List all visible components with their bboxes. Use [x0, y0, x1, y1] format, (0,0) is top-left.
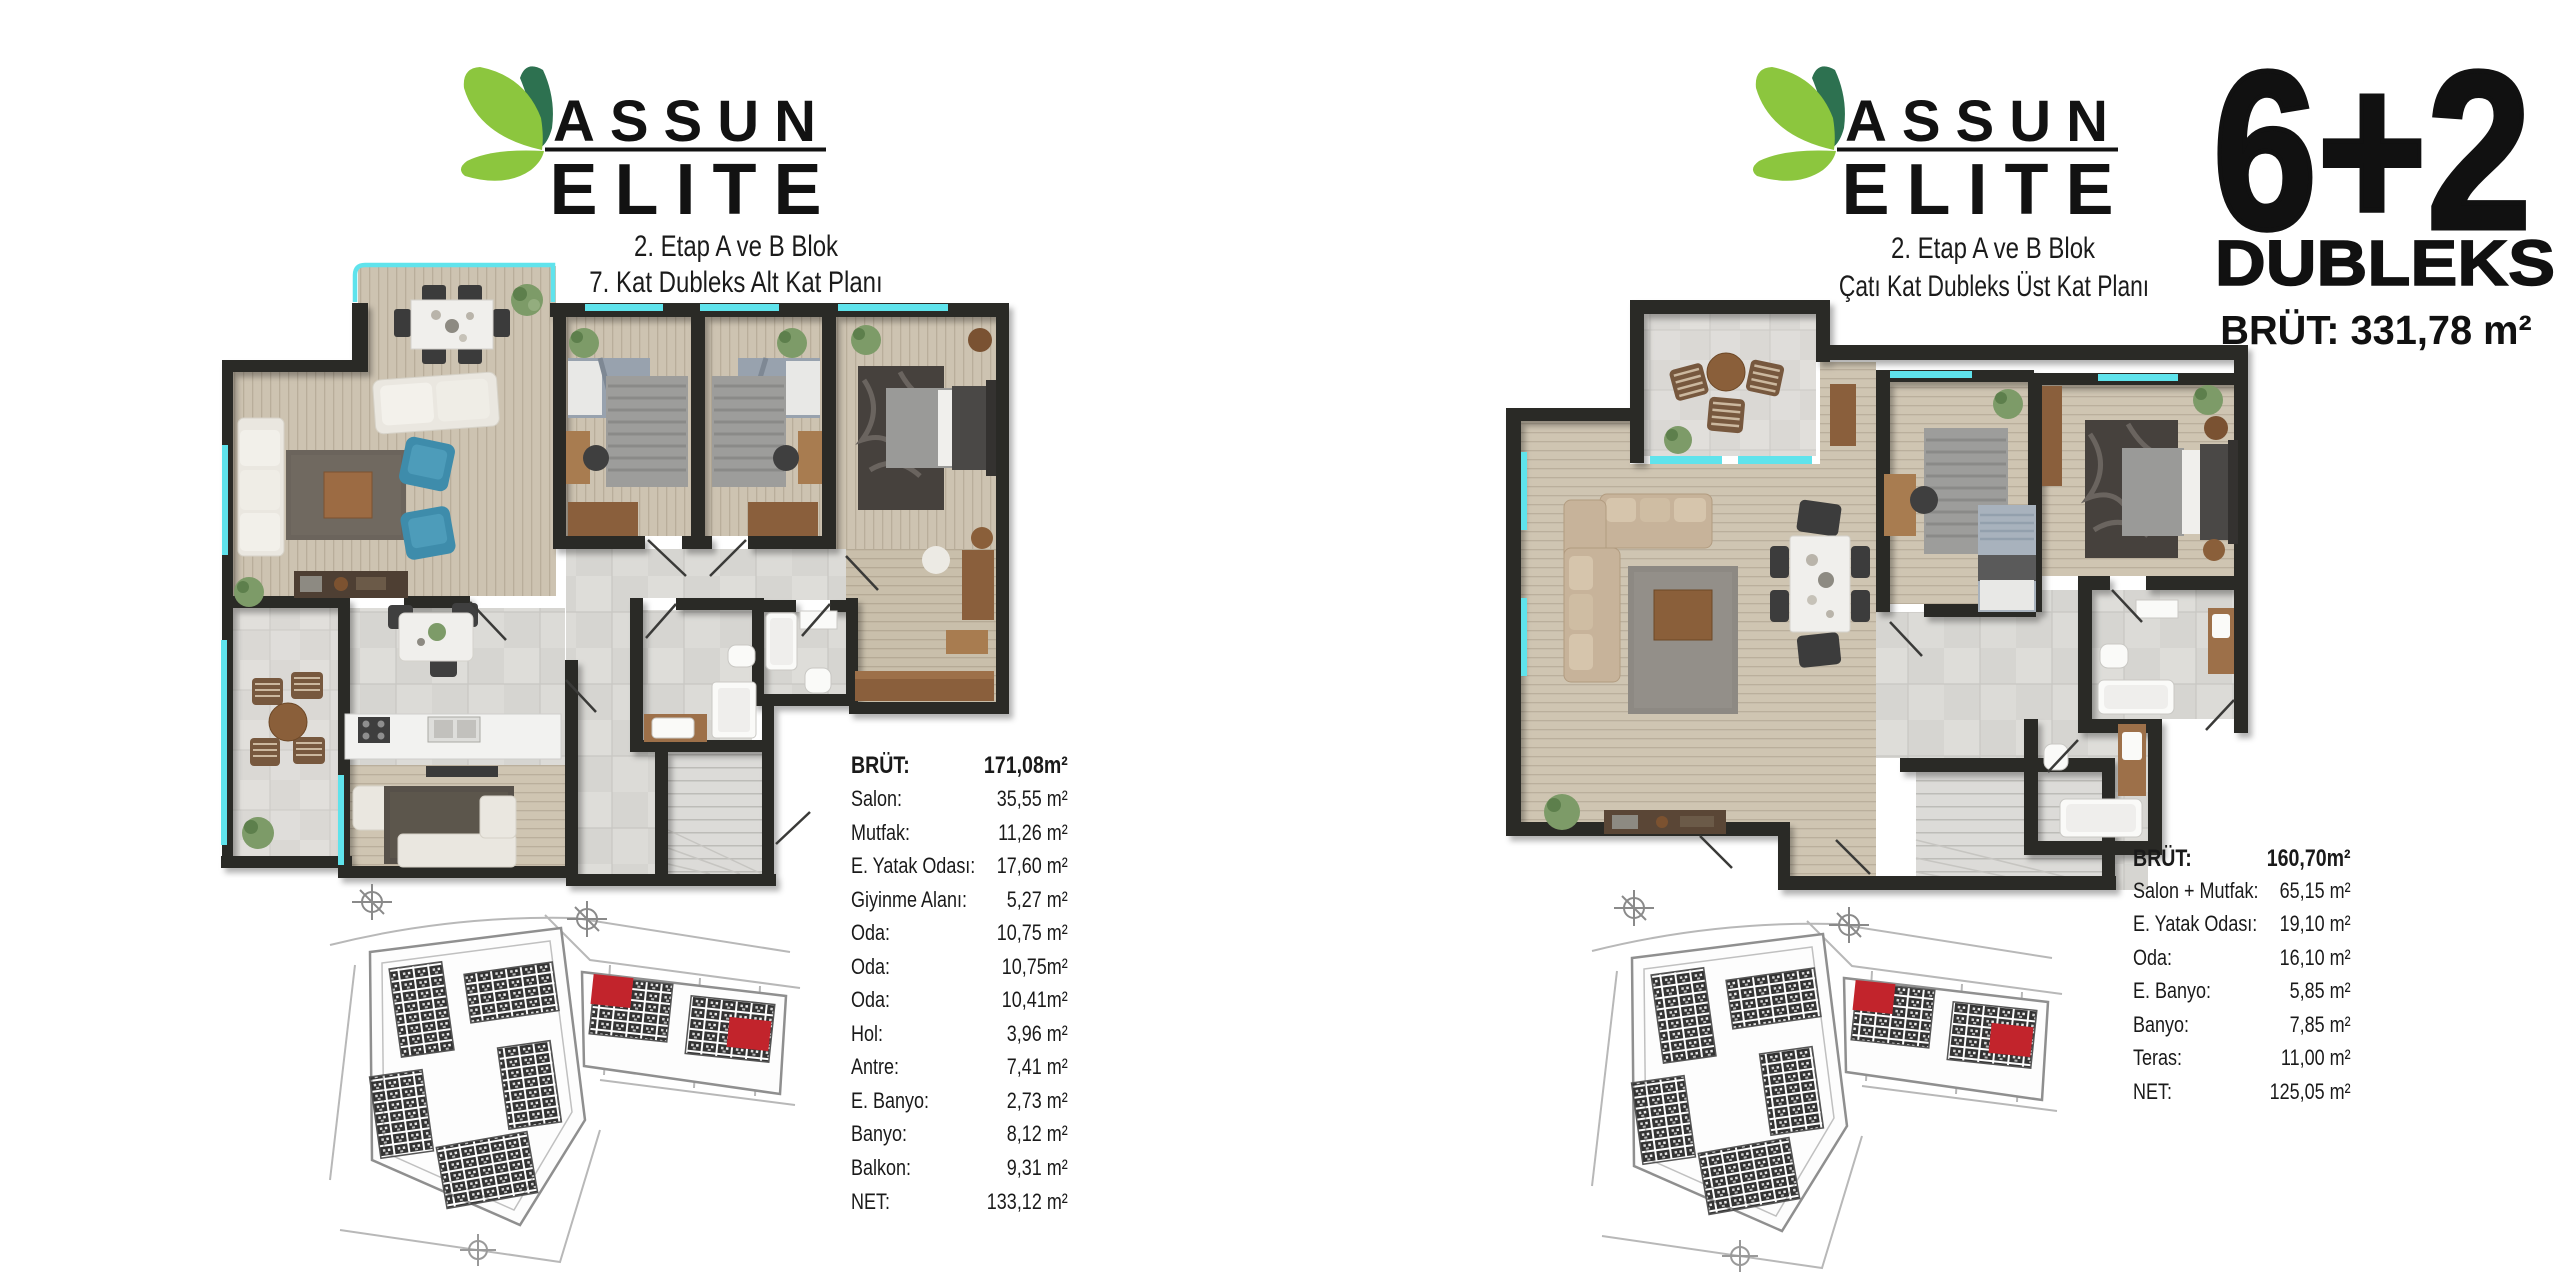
svg-text:Banyo:: Banyo: [2133, 1013, 2189, 1037]
svg-text:ELITE: ELITE [549, 150, 838, 230]
svg-text:10,75 m²: 10,75 m² [997, 921, 1068, 945]
svg-text:9,31 m²: 9,31 m² [1007, 1156, 1068, 1180]
svg-text:BRÜT:: BRÜT: [2133, 844, 2192, 872]
svg-text:ASSUN: ASSUN [1845, 89, 2123, 154]
svg-text:160,70m²: 160,70m² [2267, 844, 2351, 872]
svg-text:11,26 m²: 11,26 m² [998, 821, 1068, 845]
svg-text:Salon + Mutfak:: Salon + Mutfak: [2133, 879, 2258, 903]
svg-text:E. Banyo:: E. Banyo: [2133, 979, 2211, 1003]
svg-text:BRÜT: 331,78 m²: BRÜT: 331,78 m² [2220, 306, 2532, 353]
svg-text:E. Yatak Odası:: E. Yatak Odası: [2133, 912, 2257, 936]
svg-text:2. Etap A ve B Blok: 2. Etap A ve B Blok [1891, 230, 2095, 264]
svg-text:8,12 m²: 8,12 m² [1007, 1122, 1068, 1146]
svg-text:E. Banyo:: E. Banyo: [851, 1089, 929, 1113]
svg-text:65,15 m²: 65,15 m² [2280, 879, 2351, 903]
svg-text:5,27 m²: 5,27 m² [1007, 888, 1068, 912]
svg-text:2,73 m²: 2,73 m² [1007, 1089, 1068, 1113]
svg-text:Teras:: Teras: [2133, 1046, 2182, 1070]
svg-text:Mutfak:: Mutfak: [851, 821, 910, 845]
svg-text:171,08m²: 171,08m² [984, 751, 1068, 779]
svg-text:ELITE: ELITE [1841, 150, 2130, 230]
svg-text:133,12 m²: 133,12 m² [987, 1190, 1068, 1214]
svg-text:Giyinme Alanı:: Giyinme Alanı: [851, 888, 967, 912]
svg-text:E. Yatak Odası:: E. Yatak Odası: [851, 854, 975, 878]
svg-text:35,55 m²: 35,55 m² [997, 787, 1068, 811]
svg-text:7,85 m²: 7,85 m² [2290, 1013, 2351, 1037]
svg-text:Salon:: Salon: [851, 787, 902, 811]
svg-text:Banyo:: Banyo: [851, 1122, 907, 1146]
svg-text:Balkon:: Balkon: [851, 1156, 911, 1180]
svg-text:5,85 m²: 5,85 m² [2290, 979, 2351, 1003]
svg-text:ASSUN: ASSUN [553, 89, 831, 154]
svg-text:16,10 m²: 16,10 m² [2280, 946, 2351, 970]
svg-text:10,75m²: 10,75m² [1002, 955, 1068, 979]
svg-text:7,41 m²: 7,41 m² [1007, 1055, 1068, 1079]
svg-text:NET:: NET: [2133, 1080, 2172, 1104]
svg-text:Oda:: Oda: [851, 955, 890, 979]
svg-text:NET:: NET: [851, 1190, 890, 1214]
svg-text:11,00 m²: 11,00 m² [2281, 1046, 2351, 1070]
svg-text:Antre:: Antre: [851, 1055, 899, 1079]
svg-text:125,05 m²: 125,05 m² [2270, 1080, 2351, 1104]
svg-text:Oda:: Oda: [851, 921, 890, 945]
svg-text:Hol:: Hol: [851, 1022, 883, 1046]
svg-text:DUBLEKS: DUBLEKS [2215, 228, 2555, 299]
svg-text:Oda:: Oda: [2133, 946, 2172, 970]
svg-text:BRÜT:: BRÜT: [851, 751, 910, 779]
svg-text:10,41m²: 10,41m² [1002, 988, 1068, 1012]
svg-text:2. Etap A ve B Blok: 2. Etap A ve B Blok [634, 228, 838, 262]
svg-text:17,60 m²: 17,60 m² [997, 854, 1068, 878]
svg-text:Oda:: Oda: [851, 988, 890, 1012]
svg-text:7. Kat Dubleks Alt Kat Planı: 7. Kat Dubleks Alt Kat Planı [589, 264, 882, 298]
svg-text:19,10 m²: 19,10 m² [2280, 912, 2351, 936]
svg-text:Çatı Kat Dubleks Üst Kat Planı: Çatı Kat Dubleks Üst Kat Planı [1839, 269, 2149, 303]
svg-text:3,96 m²: 3,96 m² [1007, 1022, 1068, 1046]
